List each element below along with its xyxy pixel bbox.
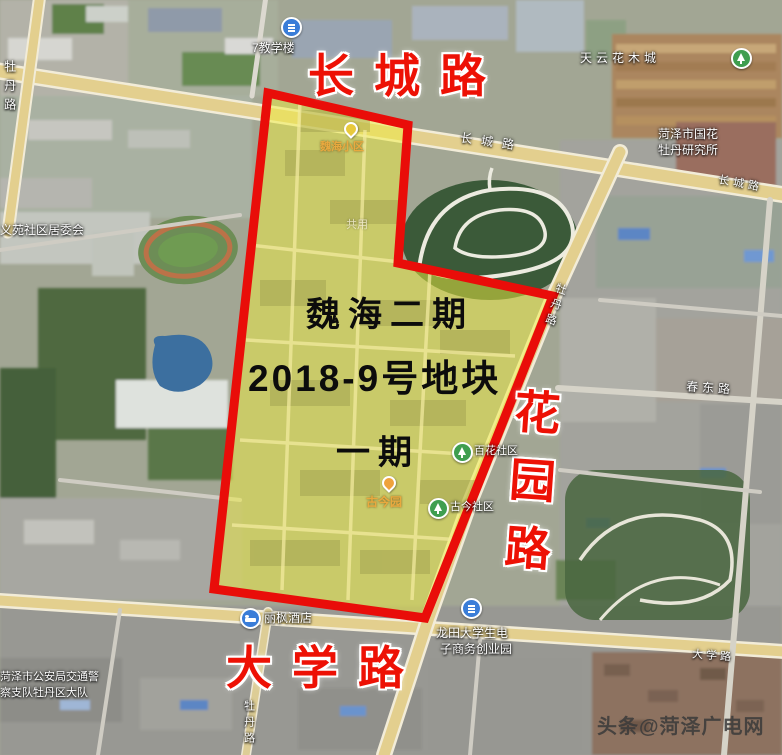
park-poi-icon-baihua bbox=[452, 442, 473, 463]
label-mudan-road-left: 牡丹路 bbox=[2, 60, 16, 117]
label-traffic-police-2: 察支队牡丹区大队 bbox=[0, 687, 88, 700]
parcel-title-line3: 一期 bbox=[336, 434, 420, 473]
label-tianyun-market: 天云花木城 bbox=[580, 52, 660, 66]
building-icon bbox=[288, 23, 295, 32]
business-park-poi-icon bbox=[461, 598, 482, 619]
label-teaching-building: 7教学楼 bbox=[252, 42, 295, 56]
label-weihai-poi: 魏海小区 bbox=[320, 141, 364, 154]
label-gongyong: 共用 bbox=[346, 219, 368, 232]
bed-icon bbox=[245, 618, 256, 622]
label-gujin-garden: 古今园 bbox=[366, 496, 402, 510]
peony-garden-park bbox=[565, 470, 750, 620]
label-longtian-2: 子商务创业园 bbox=[440, 643, 512, 657]
tree-stem-icon bbox=[461, 455, 463, 458]
parcel-title-line1: 魏海二期 bbox=[306, 296, 474, 335]
watermark-toutiao-hezegdw: 头条@菏泽广电网 bbox=[597, 716, 765, 739]
tree-icon bbox=[737, 53, 745, 61]
annotation-changcheng-road: 长城路 bbox=[308, 50, 506, 103]
school-poi-icon bbox=[281, 17, 302, 38]
label-traffic-police-1: 菏泽市公安局交通警 bbox=[0, 671, 99, 684]
tree-icon bbox=[434, 503, 442, 511]
label-yiyuan-committee: 义苑社区居委会 bbox=[0, 224, 84, 238]
park-poi-icon-top bbox=[731, 48, 752, 69]
building-icon bbox=[468, 604, 475, 613]
label-longtian-1: 龙田大学生电 bbox=[436, 627, 508, 641]
label-peony-institute-2: 牡丹研究所 bbox=[658, 144, 718, 158]
tree-stem-icon bbox=[740, 61, 742, 64]
annotation-daxue-road: 大学路 bbox=[226, 642, 424, 695]
satellite-map-image: 长城路 大学路 花园路 魏海二期 2018-9号地块 一期 7教学楼 天云花木城… bbox=[0, 0, 782, 755]
label-gujin-community: 古今社区 bbox=[450, 501, 494, 514]
parcel-title-line2: 2018-9号地块 bbox=[248, 358, 501, 401]
label-lifeng-hotel: 丽枫酒店 bbox=[264, 612, 312, 626]
label-baihua-community: 百花社区 bbox=[474, 445, 518, 458]
tree-stem-icon bbox=[437, 511, 439, 514]
hotel-poi-icon bbox=[240, 608, 261, 629]
park-poi-icon-gujin bbox=[428, 498, 449, 519]
tree-icon bbox=[458, 447, 466, 455]
bed-pillow-icon bbox=[245, 615, 249, 618]
label-mudan-road-bottom: 牡丹路 bbox=[242, 700, 255, 748]
label-peony-institute-1: 菏泽市国花 bbox=[658, 128, 718, 142]
